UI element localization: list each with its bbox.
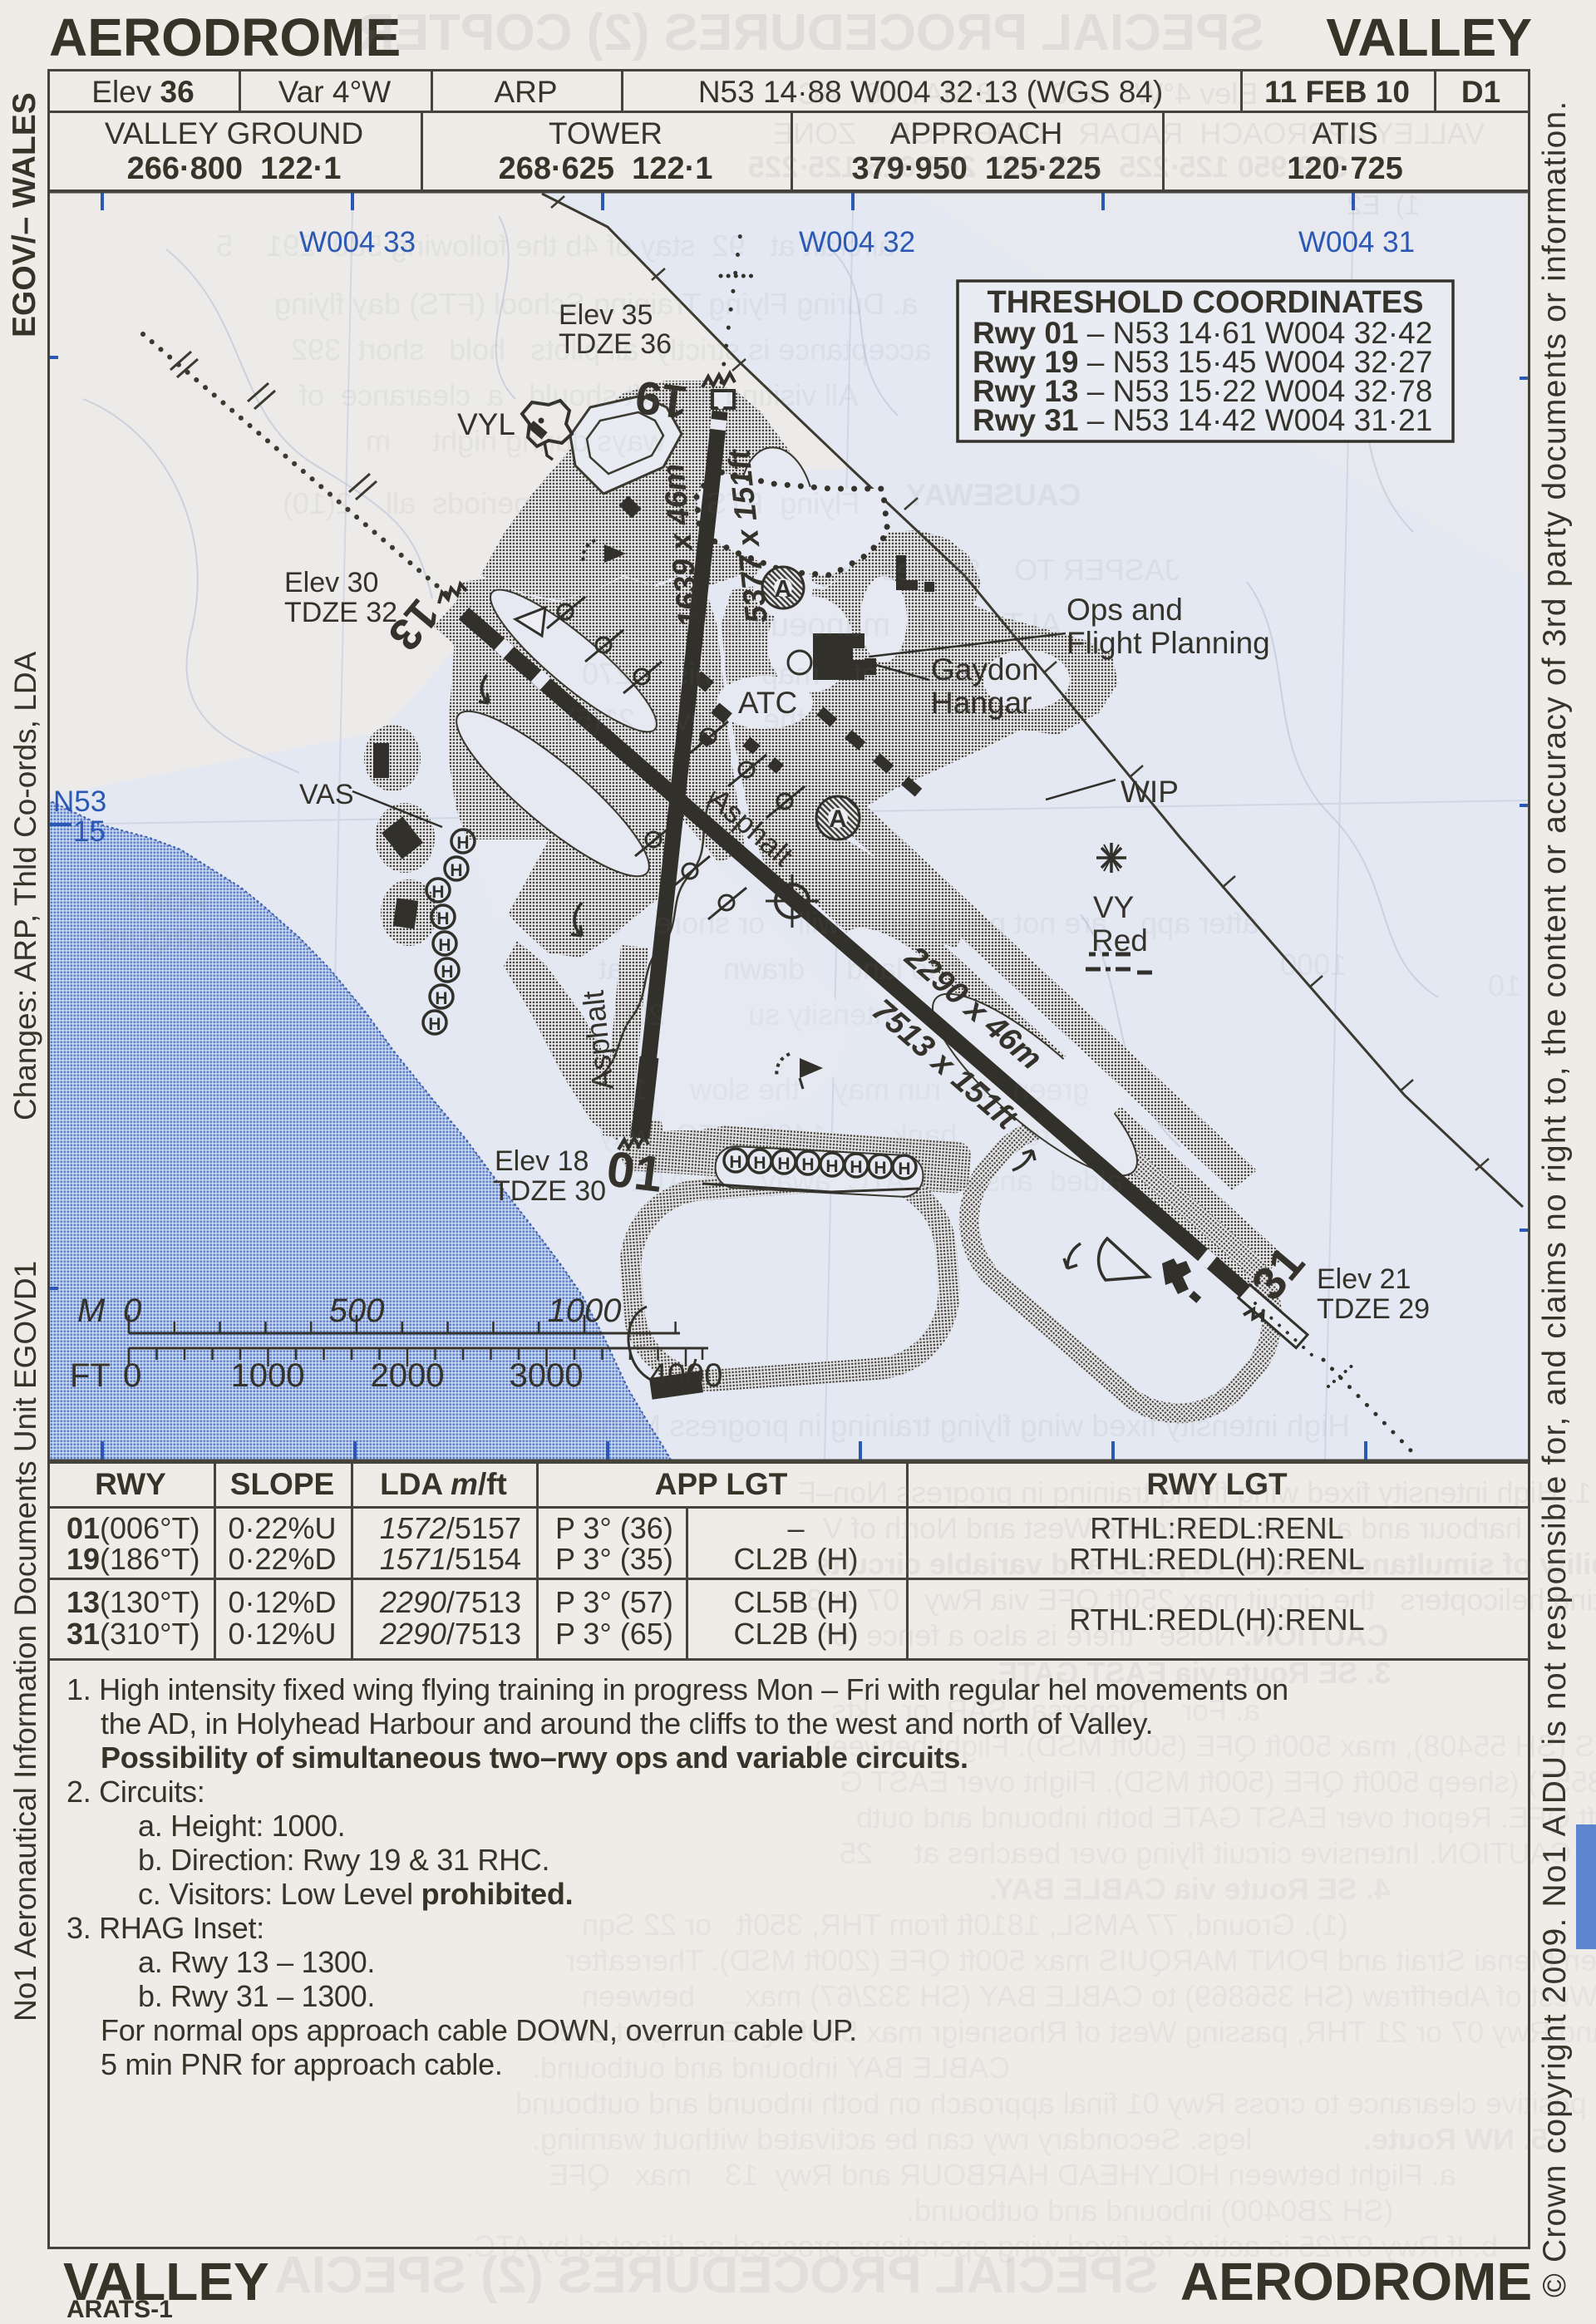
svg-text:H: H [435, 989, 447, 1008]
svg-text:H: H [436, 909, 449, 928]
svg-text:M: M [77, 1292, 106, 1329]
svg-text:3000: 3000 [510, 1357, 584, 1394]
svg-text:W004 33: W004 33 [299, 226, 416, 258]
svg-text:Elev 18: Elev 18 [495, 1145, 589, 1177]
svg-text:H: H [874, 1159, 886, 1178]
svg-text:Ops and: Ops and [1066, 593, 1183, 627]
svg-text:4000: 4000 [649, 1357, 723, 1394]
svg-text:1000: 1000 [548, 1292, 622, 1329]
svg-text:TDZE 29: TDZE 29 [1317, 1293, 1430, 1325]
svg-text:VYL: VYL [457, 407, 515, 441]
svg-text:H: H [431, 883, 444, 902]
svg-text:W004 31: W004 31 [1298, 226, 1415, 258]
svg-text:H: H [441, 963, 453, 982]
svg-text:H: H [450, 861, 462, 880]
svg-text:A: A [829, 805, 847, 833]
svg-text:Hangar: Hangar [931, 686, 1032, 720]
svg-text:500: 500 [329, 1292, 385, 1329]
svg-text:N53: N53 [53, 785, 106, 818]
svg-text:VAS: VAS [299, 779, 354, 810]
svg-text:ATC: ATC [738, 686, 797, 720]
svg-text:H: H [753, 1154, 766, 1173]
svg-text:15: 15 [73, 815, 106, 848]
svg-text:Elev 35: Elev 35 [559, 299, 653, 331]
svg-text:THRESHOLD COORDINATES: THRESHOLD COORDINATES [988, 285, 1424, 320]
svg-text:VY: VY [1093, 890, 1134, 924]
svg-text:0: 0 [123, 1357, 141, 1394]
svg-text:FT: FT [70, 1357, 111, 1394]
svg-text:Elev 30: Elev 30 [284, 567, 378, 598]
svg-text:TDZE 36: TDZE 36 [559, 328, 672, 360]
svg-text:W004 32: W004 32 [799, 226, 915, 258]
svg-text:H: H [850, 1158, 862, 1177]
svg-text:TDZE 30: TDZE 30 [493, 1175, 606, 1207]
svg-text:1000: 1000 [231, 1357, 305, 1394]
svg-text:TDZE 32: TDZE 32 [284, 597, 397, 628]
svg-text:H: H [777, 1155, 790, 1174]
svg-text:Red: Red [1091, 923, 1148, 958]
svg-text:2000: 2000 [371, 1357, 445, 1394]
svg-text:H: H [801, 1155, 814, 1174]
svg-text:A: A [775, 576, 792, 603]
svg-text:H: H [428, 1015, 441, 1034]
svg-text:0: 0 [123, 1292, 141, 1329]
svg-text:Elev 21: Elev 21 [1317, 1263, 1411, 1295]
svg-text:01: 01 [603, 1140, 665, 1203]
svg-text:H: H [729, 1153, 741, 1172]
svg-text:H: H [825, 1157, 838, 1176]
svg-text:19: 19 [633, 371, 691, 429]
svg-text:H: H [456, 834, 469, 853]
svg-text:Rwy 31 – N53 14·42 W004 31·21: Rwy 31 – N53 14·42 W004 31·21 [973, 403, 1432, 437]
svg-text:Flight Planning: Flight Planning [1066, 626, 1270, 660]
svg-text:Gaydon: Gaydon [931, 652, 1039, 687]
svg-text:H: H [438, 936, 451, 955]
svg-text:WIP: WIP [1121, 775, 1179, 809]
svg-text:H: H [898, 1160, 910, 1179]
